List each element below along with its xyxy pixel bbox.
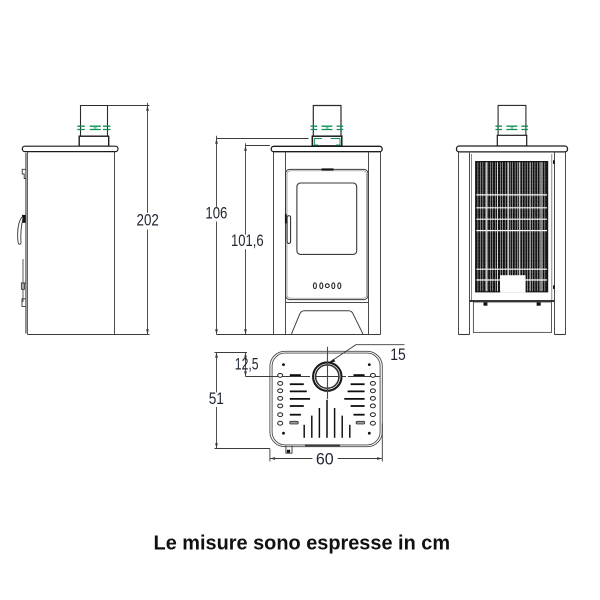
svg-text:202: 202: [137, 212, 159, 230]
svg-text:15: 15: [390, 346, 406, 364]
svg-text:101,6: 101,6: [231, 232, 264, 250]
svg-text:51: 51: [209, 390, 224, 408]
svg-text:12,5: 12,5: [235, 355, 259, 373]
svg-text:Le misure sono espresse in cm: Le misure sono espresse in cm: [154, 532, 451, 555]
svg-text:60: 60: [316, 450, 334, 468]
svg-text:106: 106: [205, 205, 227, 223]
